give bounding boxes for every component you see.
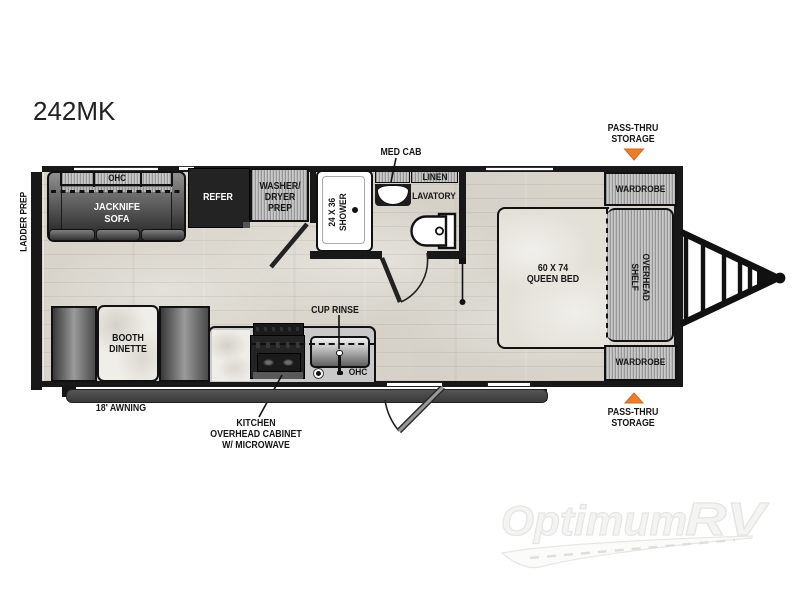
- svg-text:RV: RV: [685, 493, 769, 545]
- svg-text:Optimum: Optimum: [501, 497, 687, 544]
